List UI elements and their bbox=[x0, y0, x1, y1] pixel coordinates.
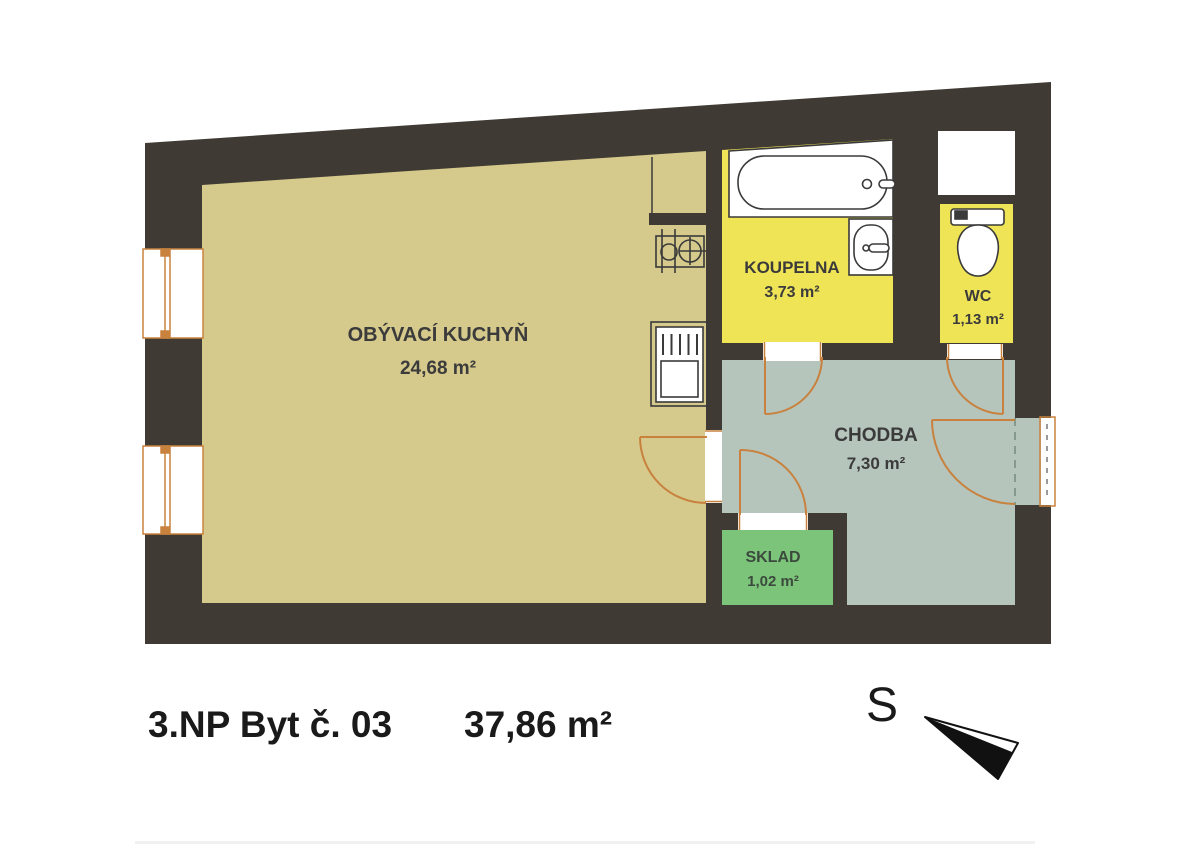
area-koupelna: 3,73 m² bbox=[764, 284, 819, 301]
label-obyvaci-kuchyn: OBÝVACÍ KUCHYŇ bbox=[348, 322, 529, 346]
door-opening-koupelna bbox=[763, 342, 822, 361]
room-sklad bbox=[722, 530, 833, 605]
plan-title: 3.NP Byt č. 03 37,86 m² bbox=[148, 704, 612, 745]
wall-stub bbox=[649, 213, 712, 225]
label-chodba: CHODBA bbox=[834, 425, 918, 446]
title-floor-unit: 3.NP Byt č. 03 bbox=[148, 704, 392, 745]
title-total-area: 37,86 m² bbox=[464, 704, 612, 745]
area-obyvaci-kuchyn: 24,68 m² bbox=[400, 358, 476, 379]
door-opening-wc bbox=[947, 344, 1003, 359]
area-wc: 1,13 m² bbox=[952, 311, 1004, 328]
floor-plan-canvas: OBÝVACÍ KUCHYŇ 24,68 m² KOUPELNA 3,73 m²… bbox=[0, 0, 1199, 846]
door-opening-sklad bbox=[738, 513, 808, 530]
area-sklad: 1,02 m² bbox=[747, 573, 799, 590]
shaft bbox=[938, 131, 1015, 195]
bathtub-icon bbox=[729, 140, 895, 217]
label-wc: WC bbox=[965, 288, 992, 305]
label-koupelna: KOUPELNA bbox=[744, 258, 839, 277]
window-icon bbox=[143, 249, 203, 338]
door-opening-entrance bbox=[1015, 417, 1055, 506]
bottom-artifact bbox=[135, 841, 1035, 844]
area-chodba: 7,30 m² bbox=[847, 454, 906, 473]
floor-plan-svg: OBÝVACÍ KUCHYŇ 24,68 m² KOUPELNA 3,73 m²… bbox=[0, 0, 1199, 846]
washbasin-icon bbox=[849, 219, 893, 275]
north-label: S bbox=[866, 679, 898, 732]
door-opening-kuchyn bbox=[705, 430, 722, 503]
label-sklad: SKLAD bbox=[745, 549, 800, 566]
window-icon bbox=[143, 446, 203, 534]
stove-icon bbox=[651, 322, 708, 406]
